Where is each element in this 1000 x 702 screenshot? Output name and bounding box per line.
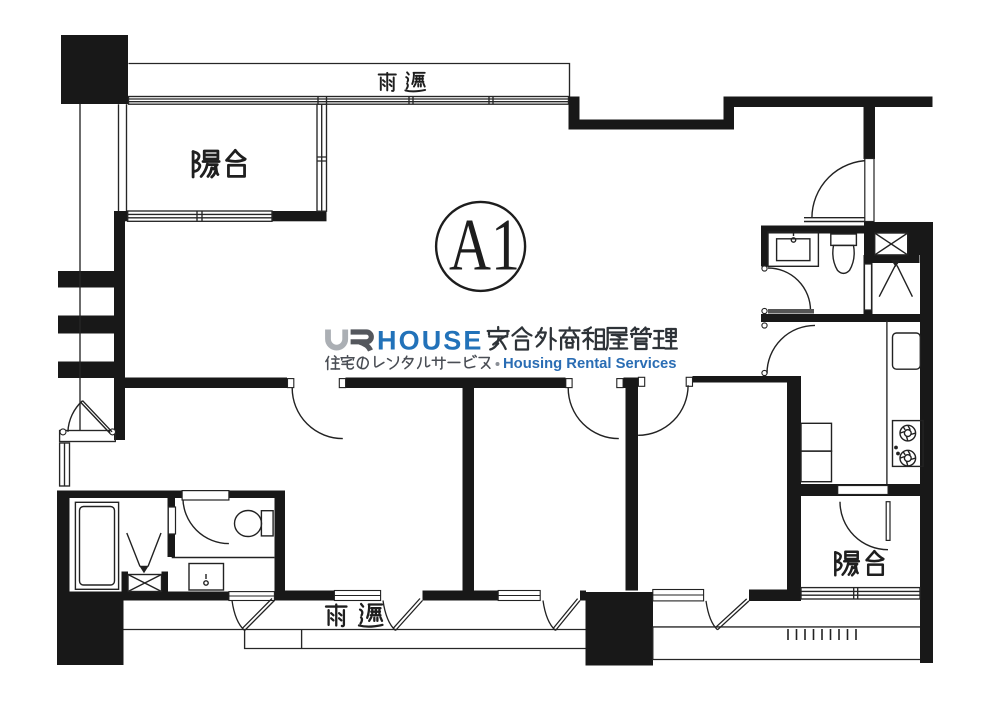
svg-text:A1: A1 (449, 205, 520, 287)
svg-text:HOUSE: HOUSE (377, 326, 484, 356)
svg-text:Housing Rental Services: Housing Rental Services (503, 356, 677, 372)
